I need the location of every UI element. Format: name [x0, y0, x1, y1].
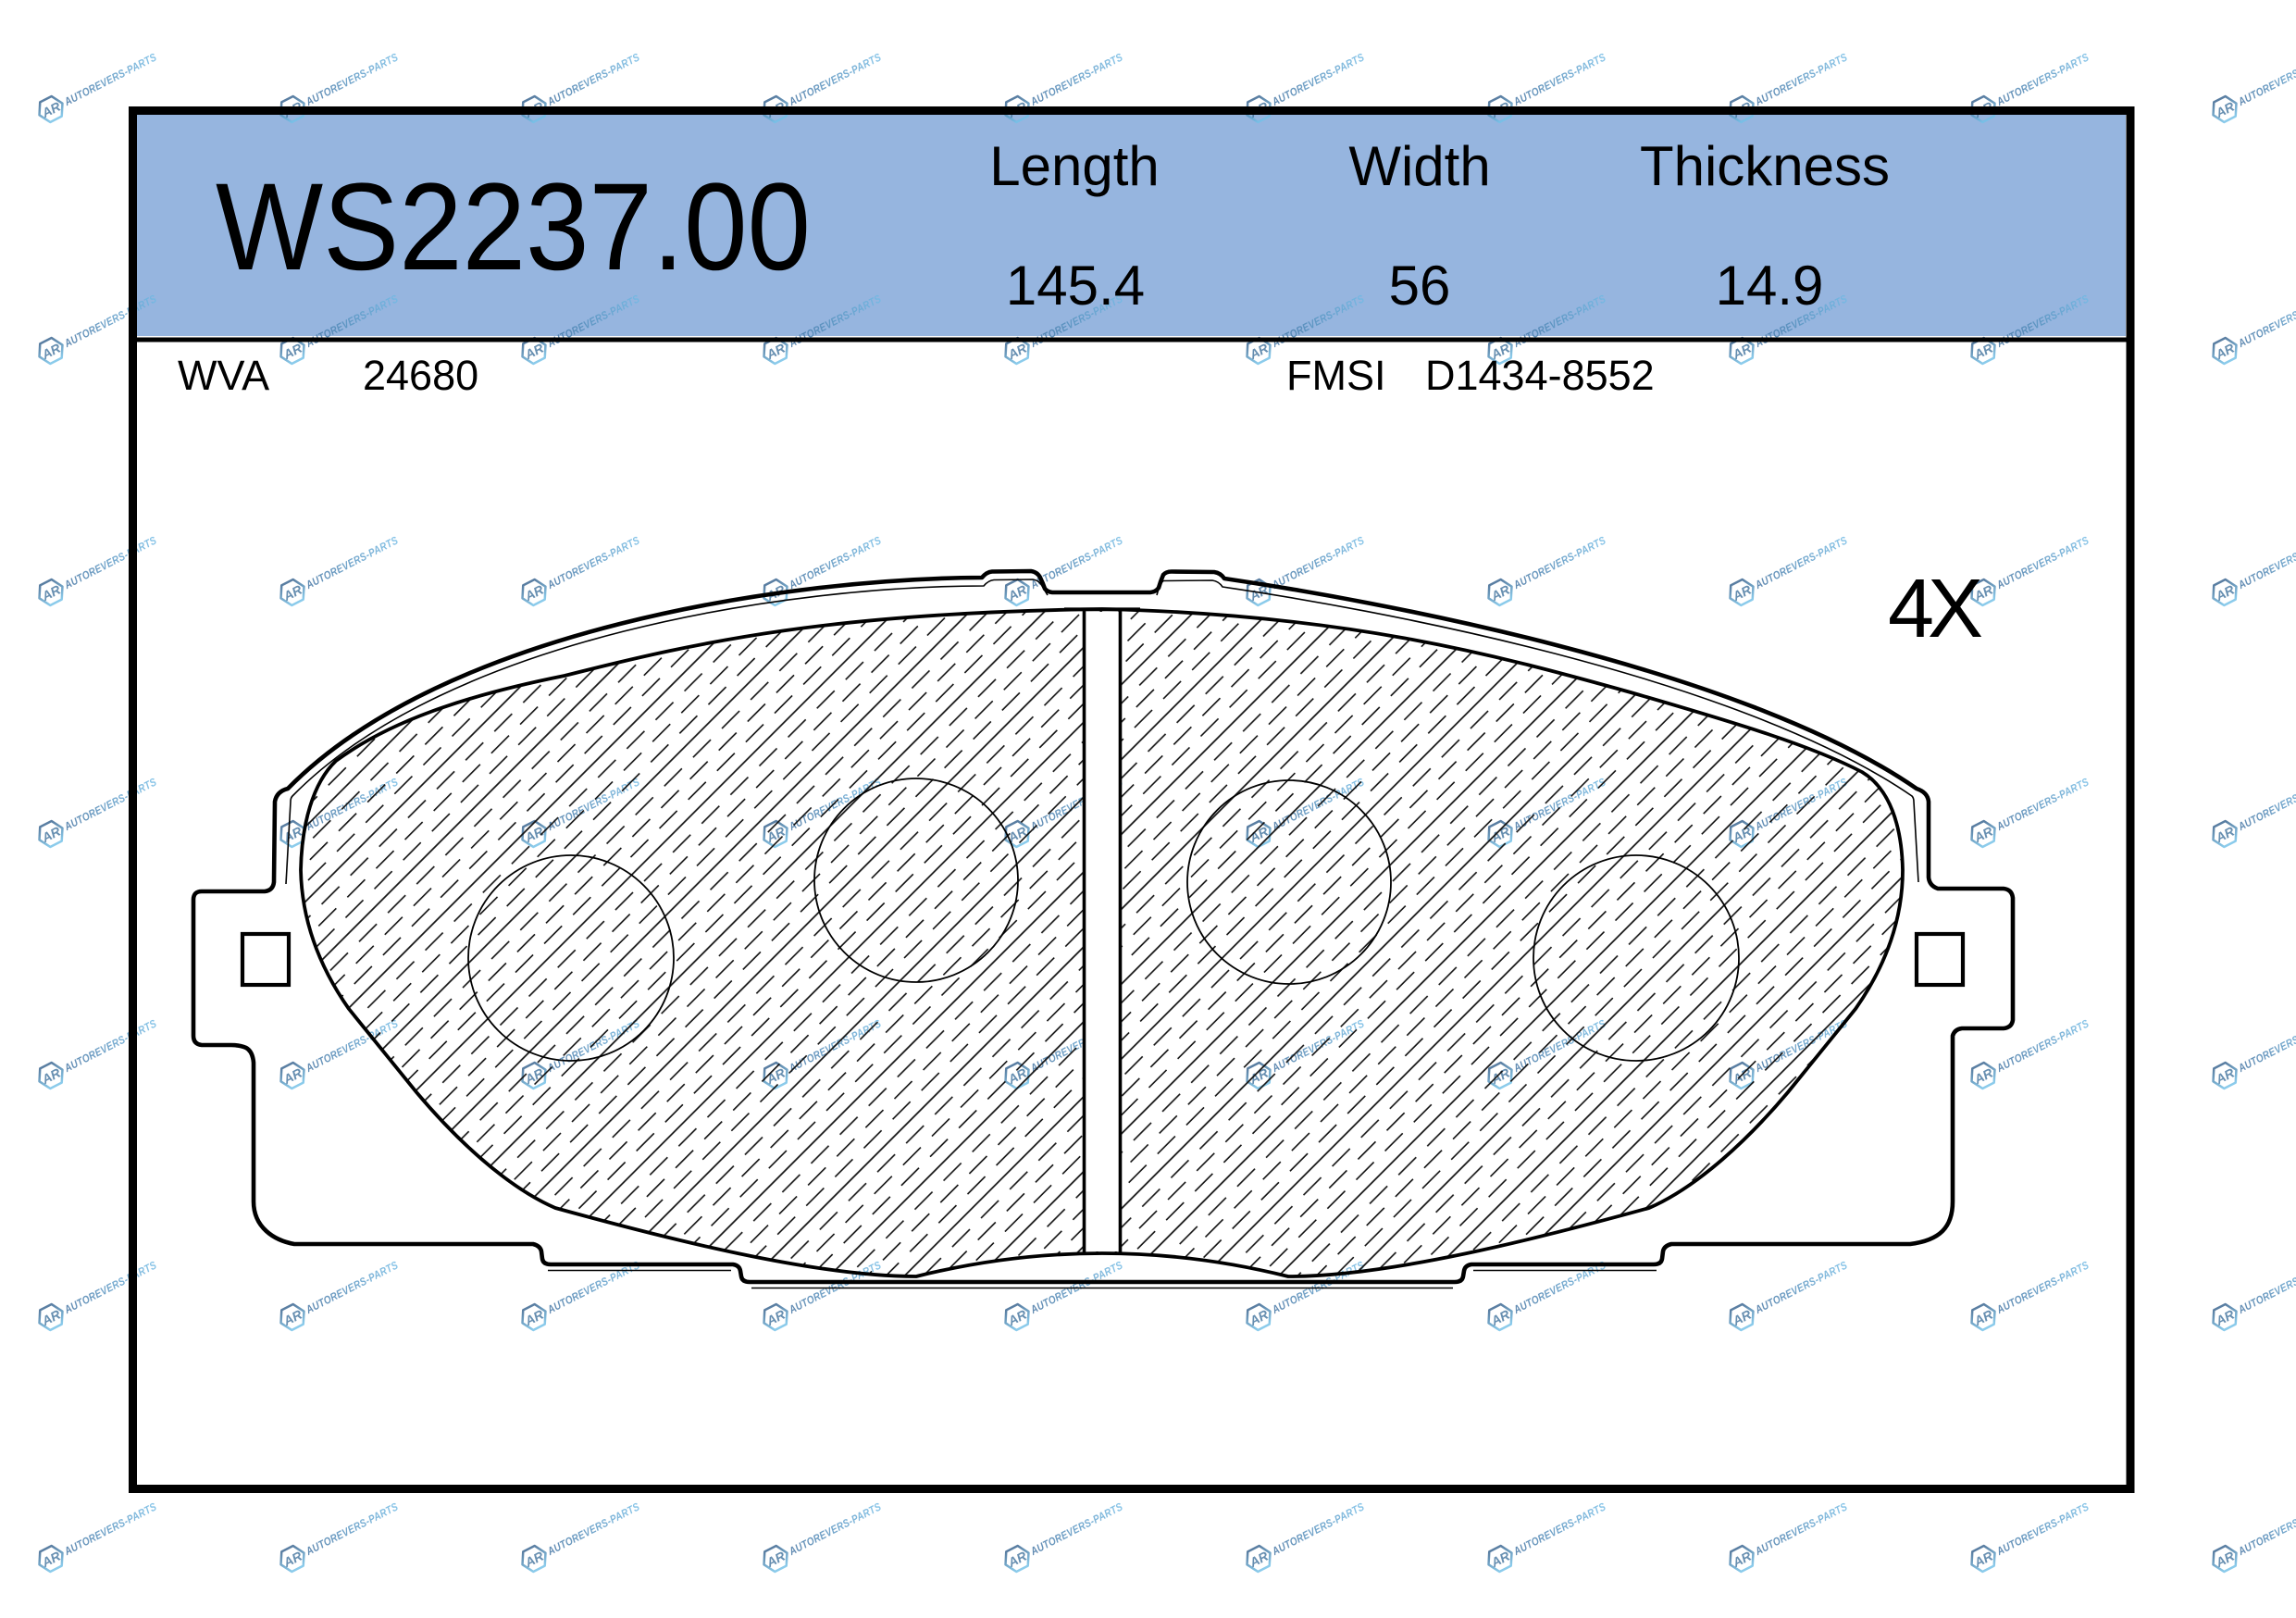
svg-text:Width: Width — [1348, 135, 1490, 197]
svg-text:24680: 24680 — [363, 352, 478, 399]
svg-text:WVA: WVA — [178, 352, 269, 399]
svg-text:FMSI: FMSI — [1286, 352, 1386, 399]
svg-text:56: 56 — [1389, 255, 1451, 317]
svg-text:D1434-8552: D1434-8552 — [1425, 352, 1655, 399]
svg-text:145.4: 145.4 — [1006, 255, 1145, 317]
svg-text:14.9: 14.9 — [1716, 255, 1824, 317]
svg-text:Length: Length — [989, 135, 1160, 197]
svg-text:4X: 4X — [1888, 563, 1982, 655]
svg-text:Thickness: Thickness — [1640, 135, 1890, 197]
svg-text:WS2237.00: WS2237.00 — [216, 158, 811, 296]
